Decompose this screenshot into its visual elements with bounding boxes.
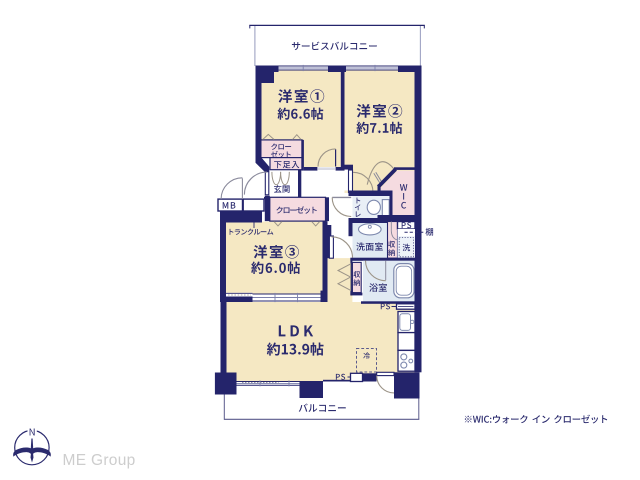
svg-text:ME Group: ME Group (63, 452, 136, 469)
